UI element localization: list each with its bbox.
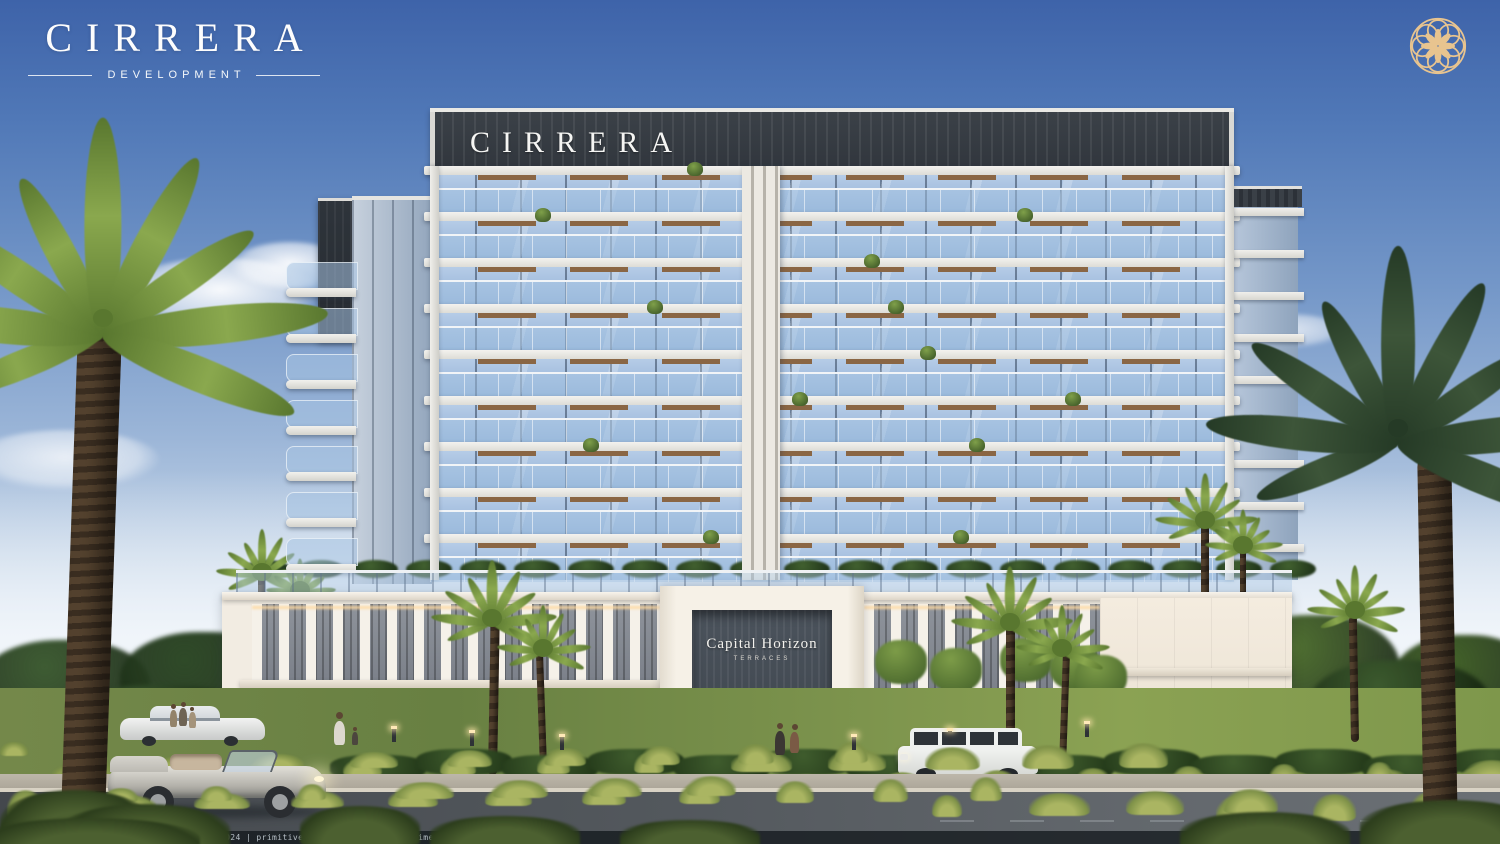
grass-tuft [686, 776, 736, 796]
glass-balustrade [430, 280, 1234, 306]
balcony-plant [1017, 208, 1033, 222]
floor-row [430, 258, 1234, 304]
palm-trunk [1201, 520, 1209, 598]
side-balcony-glass [286, 400, 358, 428]
grass-tuft [932, 795, 962, 817]
floor-row [430, 304, 1234, 350]
palm-crown [1233, 536, 1253, 554]
person-body [189, 712, 196, 728]
brand-name: CIRRERA [28, 14, 320, 61]
grass-tuft [201, 786, 232, 801]
render-scene: CIRRERA Capital Horizon TERRACES [0, 0, 1500, 844]
glass-balustrade [430, 234, 1234, 260]
annex-slab [1228, 250, 1304, 258]
facade-center-fins [742, 166, 780, 580]
person-head [353, 727, 357, 731]
bollard-glow [947, 728, 953, 731]
grass-tuft [1119, 743, 1168, 768]
palm-crown [1195, 511, 1215, 529]
side-balcony [286, 354, 356, 389]
person [179, 702, 187, 726]
balcony-plant [1065, 392, 1081, 406]
person [775, 723, 785, 755]
side-balcony [286, 492, 356, 527]
bollard-glow [391, 726, 397, 729]
entrance-sign-title: Capital Horizon [692, 636, 832, 653]
person [334, 712, 345, 745]
palm-crown [1388, 419, 1408, 437]
glass-balustrade [430, 418, 1234, 444]
grass-tuft [350, 752, 398, 768]
side-balcony-slab [286, 426, 356, 435]
grass-cluster [620, 820, 760, 844]
grass-tuft [395, 782, 454, 799]
grass-cluster [300, 806, 420, 844]
palm-crown [1052, 639, 1072, 657]
glass-balustrade [430, 372, 1234, 398]
balcony-slab [424, 488, 1240, 497]
side-balcony [286, 400, 356, 435]
balcony-plant [647, 300, 663, 314]
grass-tuft [1223, 789, 1278, 814]
floor-row [430, 350, 1234, 396]
floor-row [430, 166, 1234, 212]
side-balcony-glass [286, 538, 358, 566]
entrance-sign: Capital Horizon TERRACES [692, 636, 832, 662]
person-body [334, 721, 345, 745]
entrance-sign-subtitle: TERRACES [692, 656, 832, 662]
suv-windows [914, 732, 1018, 745]
balcony-plant [687, 162, 703, 176]
balcony-plant [864, 254, 880, 268]
grass-tuft [873, 779, 908, 802]
person-body [775, 731, 785, 755]
annex-pergola [1230, 186, 1302, 207]
side-balcony-slab [286, 380, 356, 389]
wood-soffit [478, 267, 1186, 272]
person-head [777, 723, 783, 729]
grass-tuft [544, 748, 586, 766]
rooftop-sign-band: CIRRERA [430, 108, 1234, 174]
podium-ledge [1100, 668, 1292, 676]
grass-tuft [1029, 793, 1090, 816]
grass-tuft [589, 778, 642, 797]
balcony-plant [535, 208, 551, 222]
bollard-light [560, 734, 564, 750]
balcony-plant [792, 392, 808, 406]
bollard-light [392, 726, 396, 742]
grass-tuft [447, 750, 492, 767]
balcony-plant [583, 438, 599, 452]
side-balcony-glass [286, 354, 358, 382]
palm-crown [482, 609, 502, 627]
annex-slab [1228, 208, 1304, 216]
person [170, 704, 177, 727]
grass-tuft [492, 780, 548, 798]
side-balcony-slab [286, 334, 356, 343]
side-balcony-slab [286, 518, 356, 527]
bollard-light [852, 734, 856, 750]
balcony-slab [424, 534, 1240, 543]
brand-division: DEVELOPMENT [28, 69, 320, 81]
floor-row [430, 488, 1234, 534]
brand-logo: CIRRERA DEVELOPMENT [28, 14, 320, 81]
glass-balustrade [430, 326, 1234, 352]
bollard-glow [1084, 721, 1090, 724]
side-balcony [286, 446, 356, 481]
rooftop-sign-text: CIRRERA [470, 126, 684, 160]
palm-trunk [1417, 450, 1458, 844]
annex-slab [1228, 502, 1304, 510]
corner-pier [430, 166, 439, 580]
car-headlight [314, 776, 324, 782]
grass-tuft [0, 742, 28, 756]
grass-tuft [970, 777, 1002, 801]
wood-soffit [478, 221, 1186, 226]
wood-soffit [478, 405, 1186, 410]
car-windshield [222, 750, 280, 772]
floor-row [430, 212, 1234, 258]
grass-tuft [1022, 745, 1074, 769]
person-head [171, 704, 176, 709]
balcony-plant [969, 438, 985, 452]
person-body [352, 732, 358, 745]
planter-green [875, 640, 927, 684]
person [189, 707, 196, 728]
brand-division-label: DEVELOPMENT [102, 69, 245, 81]
balcony-plant [888, 300, 904, 314]
side-balcony-slab [286, 288, 356, 297]
divider-line [28, 75, 92, 76]
palm-crown [93, 309, 113, 327]
grass-tuft [925, 747, 980, 770]
bollard-glow [559, 734, 565, 737]
wood-soffit [478, 451, 1186, 456]
person-head [190, 707, 194, 711]
wood-soffit [478, 543, 1186, 548]
side-balcony-glass [286, 446, 358, 474]
bollard-light [470, 730, 474, 746]
grass-tuft [1126, 791, 1184, 815]
balcony-plant [703, 530, 719, 544]
palm-crown [1345, 601, 1365, 619]
person [790, 724, 799, 753]
person [352, 727, 358, 745]
tower-facade [430, 166, 1234, 580]
glass-balustrade [430, 464, 1234, 490]
annex-slab [1228, 334, 1304, 342]
rosette-emblem-icon [1404, 12, 1472, 85]
podium-ledge [240, 680, 664, 688]
grass-tuft [738, 744, 774, 764]
palm-crown [1000, 613, 1020, 631]
side-balcony-slab [286, 472, 356, 481]
glass-balustrade [430, 188, 1234, 214]
annex-slab [1228, 460, 1304, 468]
floor-row [430, 442, 1234, 488]
person-head [336, 712, 343, 719]
grass-tuft [641, 746, 680, 765]
tower-left-wing [352, 196, 432, 584]
bollard-glow [469, 730, 475, 733]
wood-soffit [478, 359, 1186, 364]
person-body [179, 708, 187, 726]
suv-headlight [900, 754, 908, 760]
balcony-plant [953, 530, 969, 544]
grass-cluster [1180, 812, 1350, 844]
car-seats [170, 754, 222, 770]
grass-tuft [298, 784, 326, 800]
balcony-slab [424, 396, 1240, 405]
side-balcony [286, 538, 356, 573]
wood-soffit [478, 497, 1186, 502]
bollard-glow [851, 734, 857, 737]
balcony-slab [424, 304, 1240, 313]
glass-balustrade [430, 510, 1234, 536]
wood-soffit [478, 313, 1186, 318]
grass-tuft [776, 781, 814, 803]
side-balcony-glass [286, 262, 358, 290]
led-strip [252, 606, 660, 609]
planter-green [930, 648, 982, 692]
balcony-slab [424, 350, 1240, 359]
person-body [170, 710, 177, 727]
floor-row [430, 396, 1234, 442]
car-rear-deck [110, 756, 168, 772]
balcony-slab [424, 442, 1240, 451]
balcony-plant [920, 346, 936, 360]
person-body [790, 732, 799, 753]
palm-crown [533, 639, 553, 657]
divider-line [256, 75, 320, 76]
side-balcony-glass [286, 492, 358, 520]
bollard-light [1085, 721, 1089, 737]
side-balcony [286, 262, 356, 297]
wood-soffit [478, 175, 1186, 180]
person-head [792, 724, 798, 730]
balcony-slab [424, 166, 1240, 175]
grass-cluster [430, 816, 580, 844]
bollard-light [948, 728, 952, 744]
annex-slab [1228, 292, 1304, 300]
balcony-slab [424, 258, 1240, 267]
person-head [181, 702, 186, 707]
